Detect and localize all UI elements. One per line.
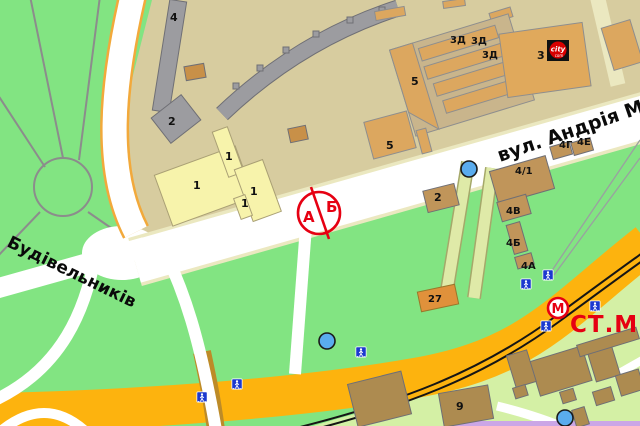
pedestrian-crossing-icon[interactable] [590,301,600,311]
label-bld-4a: 4А [521,261,536,272]
label-bld-3: 3 [537,49,545,62]
label-bld-3d-3: 3Д [482,50,498,61]
label-bld-27: 27 [428,294,442,305]
label-bld-3d-2: 3Д [471,36,487,47]
label-bld-1d: 1 [241,197,249,210]
label-bld-3d-1: 3Д [450,35,466,46]
label-bld-4v: 4В [506,206,521,217]
city-com-logo[interactable]: citycom [547,40,569,61]
map-viewport[interactable]: МСТ.М.АБcitycom 4211115533Д3Д3Д24/14Г4Е4… [0,0,640,426]
label-bld-9: 9 [456,400,464,413]
building-3 [499,22,591,97]
label-bld-1b: 1 [225,150,233,163]
metro-station-label: СТ.М. [570,312,640,338]
label-bld-4b: 4Б [506,238,521,249]
metro-letter: М [552,302,565,317]
outbuilding [288,125,309,142]
pedestrian-crossing-icon[interactable] [543,270,553,280]
pedestrian-crossing-icon[interactable] [356,347,366,357]
label-bld-1c: 1 [250,185,258,198]
label-bld-5a: 5 [411,75,419,88]
label-bld-2-brown: 2 [434,191,442,204]
boundary-letter-b: Б [326,198,337,216]
pedestrian-crossing-icon[interactable] [521,279,531,289]
label-bld-5b: 5 [386,139,394,152]
city-map: МСТ.М.АБcitycom 4211115533Д3Д3Д24/14Г4Е4… [0,0,640,426]
transit-stop-dot[interactable] [461,161,477,177]
pedestrian-crossing-icon[interactable] [541,321,551,331]
label-bld-2-gray: 2 [168,115,176,128]
logo-subtext: com [555,53,564,58]
label-bld-1a: 1 [193,179,201,192]
transit-stop-dot[interactable] [557,410,573,426]
outbuilding [184,63,206,80]
pedestrian-crossing-icon[interactable] [197,392,207,402]
transit-stop-dot[interactable] [319,333,335,349]
label-bld-4: 4 [170,11,178,24]
pedestrian-crossing-icon[interactable] [232,379,242,389]
label-bld-4-1: 4/1 [515,166,533,177]
boundary-letter-a: А [303,208,315,226]
metro-marker[interactable]: М [548,298,568,318]
